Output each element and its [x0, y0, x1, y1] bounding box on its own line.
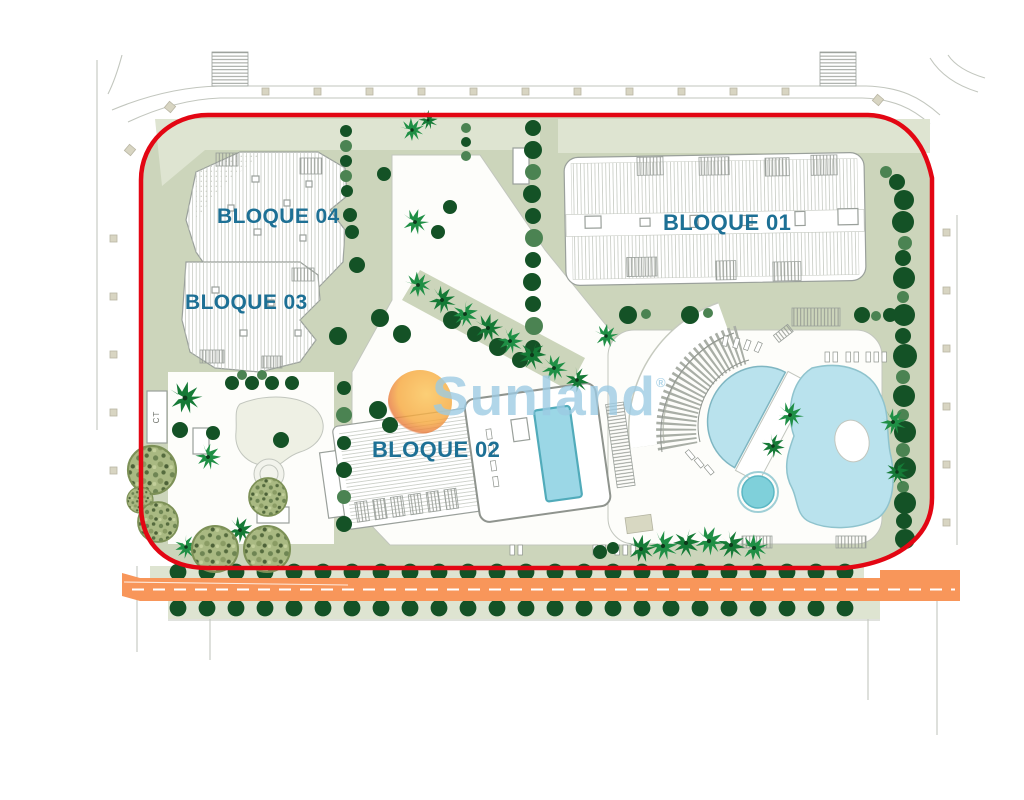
label-ct: CT [150, 392, 164, 442]
label-bloque-01: BLOQUE 01 [663, 210, 791, 236]
crosswalk-north-east [820, 52, 856, 86]
label-bloque-04: BLOQUE 04 [217, 205, 340, 229]
building-bloque-03 [182, 262, 320, 372]
label-bloque-03: BLOQUE 03 [185, 291, 308, 315]
label-bloque-02: BLOQUE 02 [372, 437, 500, 463]
crosswalk-north-west [212, 52, 248, 86]
main-pool [787, 366, 893, 528]
site-plan: Sunland® BLOQUE 01 BLOQUE 02 BLOQUE 03 B… [0, 0, 1024, 800]
kids-pool [738, 472, 778, 512]
